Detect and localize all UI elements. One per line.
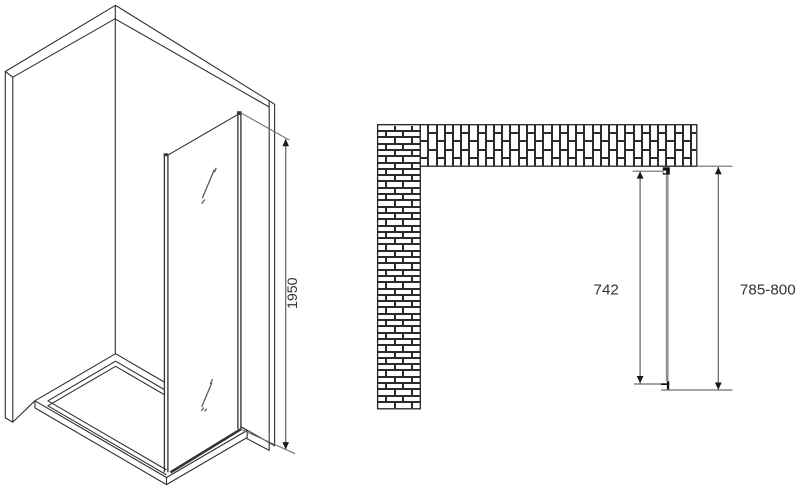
svg-text:1950: 1950 [285,277,301,309]
svg-text:742: 742 [594,282,619,299]
svg-text:785-800: 785-800 [740,282,796,299]
